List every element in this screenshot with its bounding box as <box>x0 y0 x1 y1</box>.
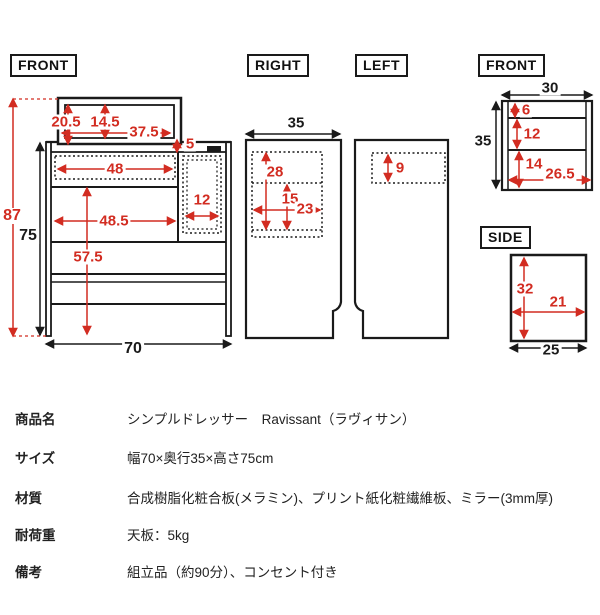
view-label-side: SIDE <box>480 226 531 249</box>
dim-cabinet-row2: 12 <box>522 127 543 142</box>
dim-cabinet-row1: 6 <box>520 103 532 118</box>
dim-bottom-width: 70 <box>122 341 144 357</box>
spec-label: 備考 <box>15 561 42 581</box>
dim-mirror-height: 20.5 <box>49 115 82 130</box>
spec-label: 材質 <box>15 487 42 507</box>
product-dimension-sheet: FRONT RIGHT LEFT FRONT SIDE 87 75 70 20.… <box>0 0 600 615</box>
spec-value: 合成樹脂化粧合板(メラミン)、プリント紙化粧繊維板、ミラー(3mm厚) <box>127 487 553 507</box>
spec-row-material: 材質 合成樹脂化粧合板(メラミン)、プリント紙化粧繊維板、ミラー(3mm厚) <box>0 487 600 505</box>
dim-side-inner-width: 21 <box>548 295 569 310</box>
spec-row-product-name: 商品名 シンプルドレッサー Ravissant（ラヴィサン） <box>0 408 600 426</box>
dim-side-height: 32 <box>515 282 536 297</box>
dim-open-height: 57.5 <box>71 250 104 265</box>
view-label-left: LEFT <box>355 54 408 77</box>
dim-door-width: 12 <box>192 193 213 208</box>
dim-total-height: 87 <box>1 208 23 224</box>
dim-mirror-width: 37.5 <box>127 125 160 140</box>
dim-left-shelf-zone-height: 9 <box>394 161 406 176</box>
spec-label: 商品名 <box>15 408 56 428</box>
spec-value: シンプルドレッサー Ravissant（ラヴィサン） <box>127 408 415 428</box>
dim-cabinet-height: 35 <box>473 134 494 149</box>
outlet-mark <box>207 146 221 152</box>
dim-right-depth: 35 <box>286 116 307 131</box>
dim-right-mirror-zone-height: 28 <box>265 165 286 180</box>
spec-label: 耐荷重 <box>15 524 56 544</box>
right-view-drawing <box>246 134 341 338</box>
spec-row-load-capacity: 耐荷重 天板：5kg <box>0 524 600 542</box>
dim-top-thickness: 5 <box>184 137 196 152</box>
spec-value: 組立品（約90分）、コンセント付き <box>127 561 338 581</box>
dim-cabinet-inner-width: 26.5 <box>543 167 576 182</box>
spec-row-size: サイズ 幅70×奥行35×高さ75cm <box>0 447 600 465</box>
front-view-black-arrows <box>40 143 231 344</box>
spec-value: 幅70×奥行35×高さ75cm <box>127 447 273 467</box>
view-label-front-small: FRONT <box>478 54 545 77</box>
dim-mirror-inner-height: 14.5 <box>88 115 121 130</box>
dim-cabinet-row3: 14 <box>524 157 545 172</box>
dim-right-inner-width: 23 <box>295 202 316 217</box>
dim-body-height: 75 <box>17 228 39 244</box>
view-label-front: FRONT <box>10 54 77 77</box>
spec-label: サイズ <box>15 447 55 467</box>
dim-open-width: 48.5 <box>97 214 130 229</box>
spec-value: 天板：5kg <box>127 524 189 544</box>
view-label-right: RIGHT <box>247 54 309 77</box>
dim-cabinet-width: 30 <box>540 81 561 96</box>
dim-side-width: 25 <box>541 343 562 358</box>
spec-row-notes: 備考 組立品（約90分）、コンセント付き <box>0 561 600 579</box>
dim-top-shelf-width: 48 <box>105 162 126 177</box>
